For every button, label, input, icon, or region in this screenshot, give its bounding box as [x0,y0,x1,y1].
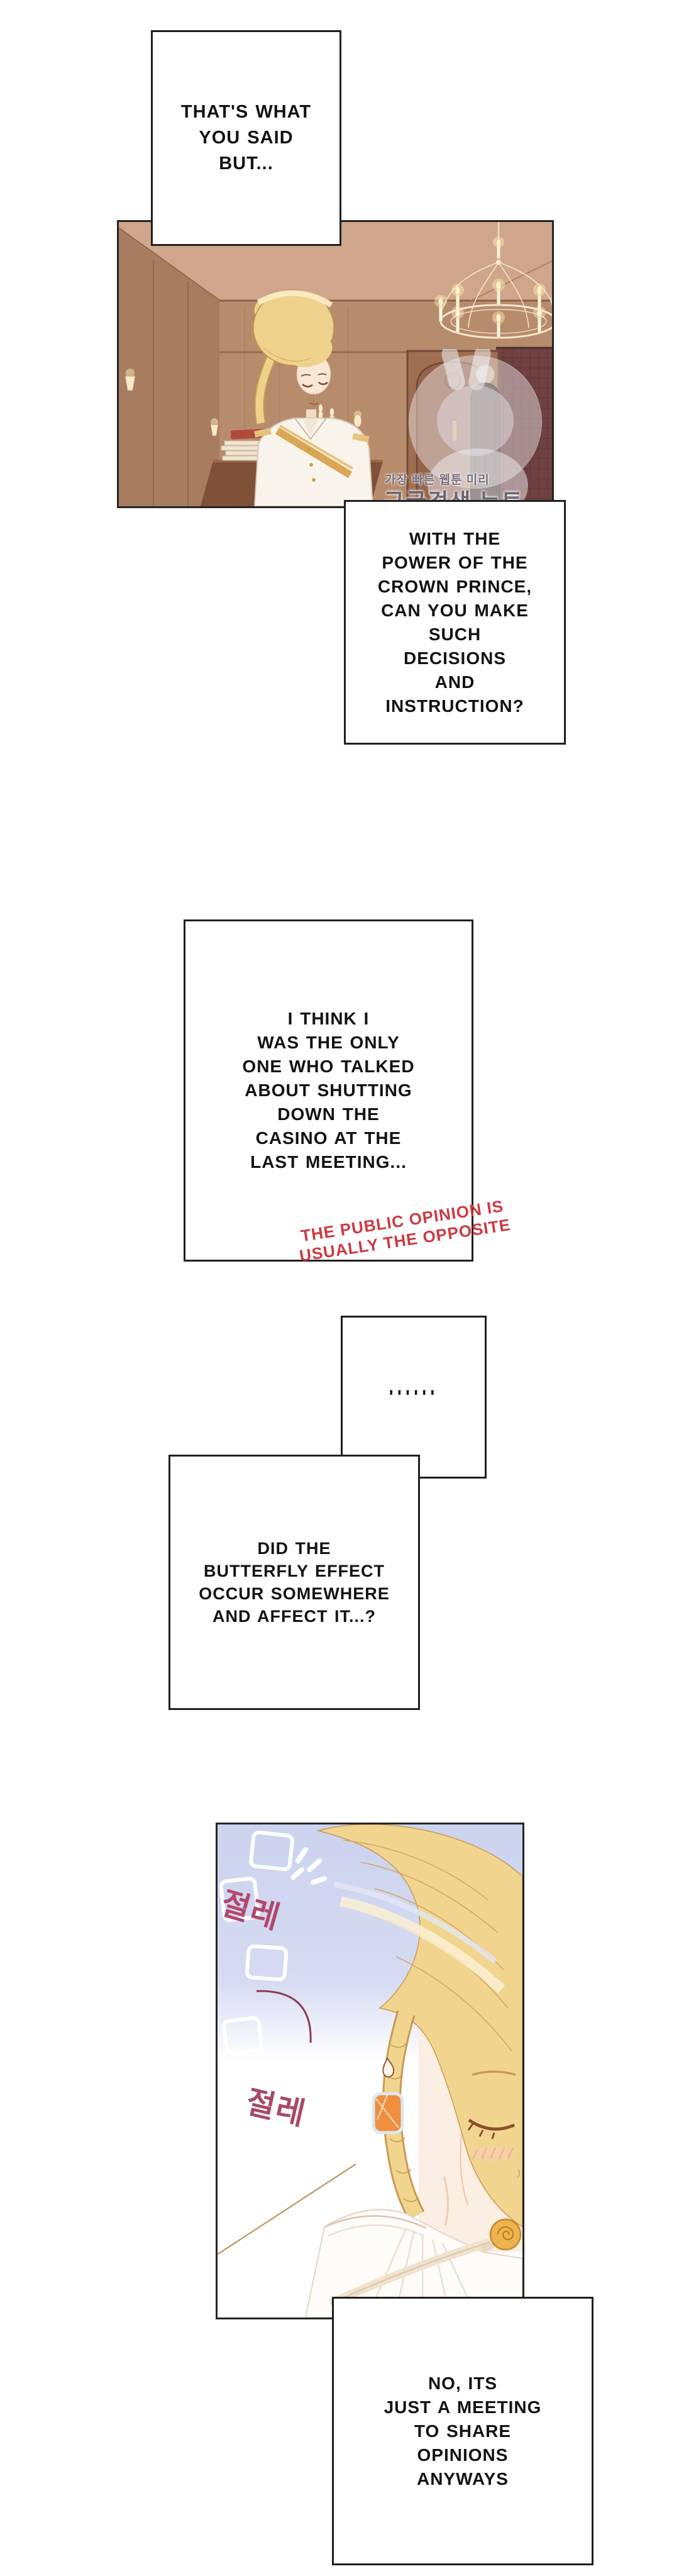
speech-bubble-2: WITH THE POWER OF THE CROWN PRINCE, CAN … [344,500,566,745]
speech-text-1: THAT'S WHAT YOU SAID BUT... [153,99,339,177]
room-illustration [119,222,552,506]
speech-text-2: WITH THE POWER OF THE CROWN PRINCE, CAN … [346,527,564,718]
white-coat [255,418,373,506]
door-handle [452,420,457,441]
speech-text-4: '''''' [343,1388,485,1407]
panel-room-scene [117,220,554,508]
webtoon-page: THAT'S WHAT YOU SAID BUT... [0,0,679,2576]
maroon-wall [496,348,552,506]
speech-bubble-5: DID THE BUTTERFLY EFFECT OCCUR SOMEWHERE… [168,1455,420,1710]
speech-text-5: DID THE BUTTERFLY EFFECT OCCUR SOMEWHERE… [170,1537,418,1628]
speech-text-6: NO, ITS JUST A MEETING TO SHARE OPINIONS… [334,2372,592,2491]
speech-bubble-1: THAT'S WHAT YOU SAID BUT... [151,30,341,246]
speech-bubble-6: NO, ITS JUST A MEETING TO SHARE OPINIONS… [332,2297,593,2565]
earring [373,2094,402,2133]
speech-text-3: I THINK I WAS THE ONLY ONE WHO TALKED AB… [185,1007,472,1174]
